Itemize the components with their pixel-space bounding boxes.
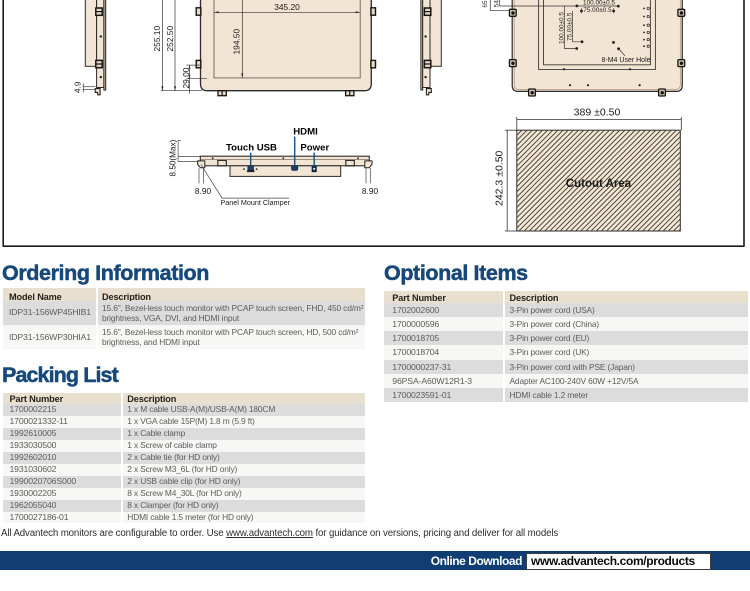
svg-text:255.10: 255.10 bbox=[152, 26, 162, 52]
svg-text:252.50: 252.50 bbox=[165, 26, 175, 52]
svg-text:29.00: 29.00 bbox=[181, 67, 191, 88]
svg-text:4.9: 4.9 bbox=[74, 81, 83, 93]
svg-text:389 ±0.50: 389 ±0.50 bbox=[574, 107, 621, 119]
svg-text:8-M4 User Hole: 8-M4 User Hole bbox=[602, 57, 651, 64]
svg-text:100.00±0.5: 100.00±0.5 bbox=[558, 12, 565, 44]
svg-text:100.00±0.5: 100.00±0.5 bbox=[583, 0, 615, 7]
svg-text:8.90: 8.90 bbox=[362, 186, 379, 196]
svg-text:75.00±0.5: 75.00±0.5 bbox=[583, 7, 612, 14]
svg-text:Cutout Area: Cutout Area bbox=[566, 178, 632, 190]
svg-text:242.3 ±0.50: 242.3 ±0.50 bbox=[494, 150, 506, 206]
svg-text:54.50: 54.50 bbox=[494, 0, 501, 7]
svg-text:HDMI: HDMI bbox=[293, 127, 318, 138]
svg-text:345.20: 345.20 bbox=[274, 2, 300, 12]
svg-text:8.90: 8.90 bbox=[195, 186, 212, 196]
svg-text:Power: Power bbox=[300, 143, 329, 154]
svg-text:Panel Mount Clamper: Panel Mount Clamper bbox=[221, 198, 291, 207]
svg-text:65.50: 65.50 bbox=[482, 0, 489, 8]
svg-text:Touch USB: Touch USB bbox=[226, 143, 277, 154]
svg-text:75.00±0.5: 75.00±0.5 bbox=[567, 12, 574, 41]
svg-text:194.50: 194.50 bbox=[231, 29, 241, 55]
svg-text:8.50(Max): 8.50(Max) bbox=[168, 139, 177, 176]
